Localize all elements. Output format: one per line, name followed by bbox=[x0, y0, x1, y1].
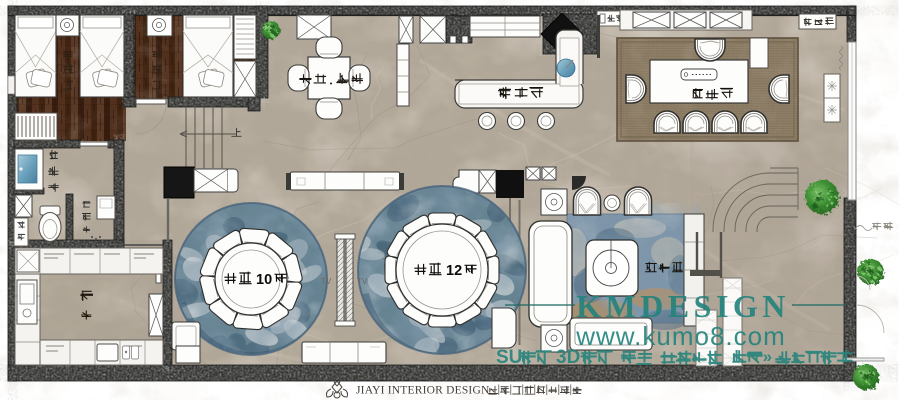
svg-text:TV: TV bbox=[321, 277, 332, 286]
svg-text:KMDESIGN: KMDESIGN bbox=[576, 288, 790, 324]
svg-text:12: 12 bbox=[446, 263, 462, 279]
svg-text:www.kumo8.com: www.kumo8.com bbox=[575, 321, 786, 351]
svg-text:»: » bbox=[763, 347, 772, 366]
svg-text:TV: TV bbox=[357, 277, 368, 286]
svg-text:JIAYI INTERIOR DESIGN: JIAYI INTERIOR DESIGN bbox=[356, 385, 490, 397]
svg-text:10: 10 bbox=[256, 272, 272, 288]
svg-text:SU: SU bbox=[496, 347, 522, 368]
svg-text:3D: 3D bbox=[556, 347, 580, 368]
